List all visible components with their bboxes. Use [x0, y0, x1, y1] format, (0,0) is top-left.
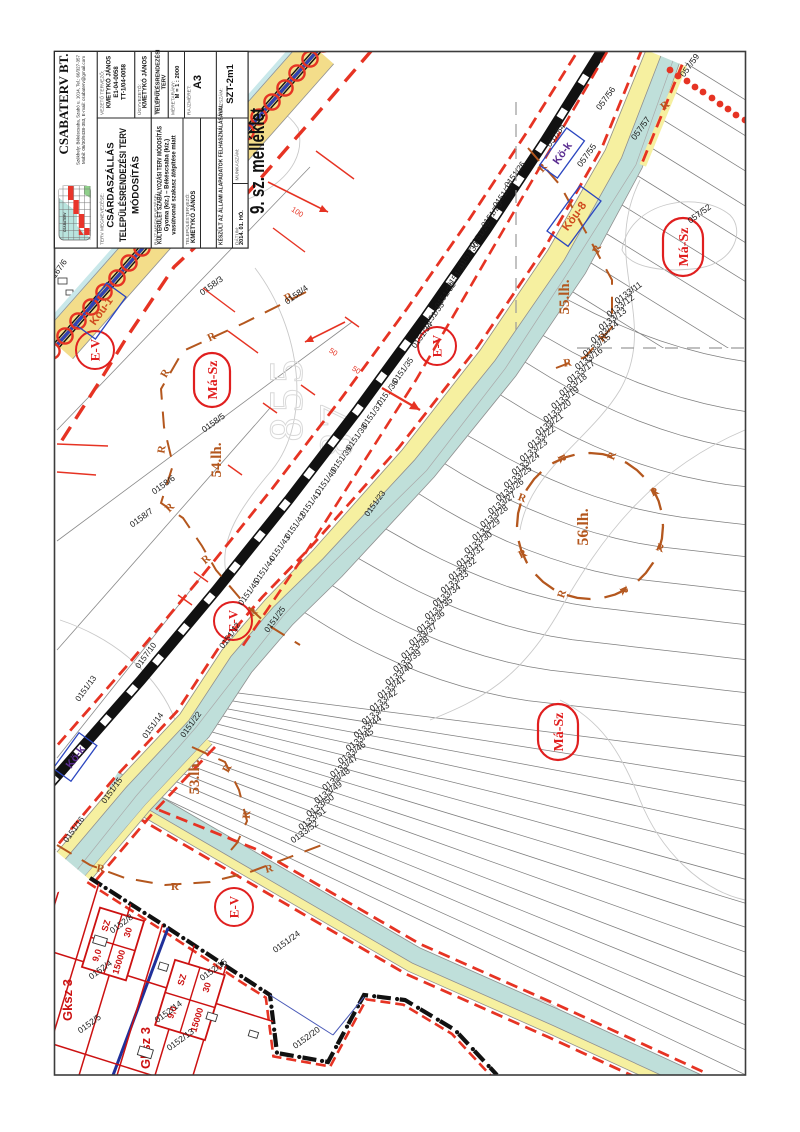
svg-text:M = 1 : 2000: M = 1 : 2000 — [175, 66, 181, 99]
svg-text:SZT-2m1: SZT-2m1 — [225, 63, 236, 103]
svg-text:Má-Sz: Má-Sz — [206, 361, 221, 400]
svg-text:E-V: E-V — [430, 334, 445, 357]
svg-text:9. sz. melléklet: 9. sz. melléklet — [247, 108, 269, 214]
svg-text:TELEPÜLÉSTERVEZŐ:: TELEPÜLÉSTERVEZŐ: — [184, 193, 191, 245]
svg-text:855: 855 — [260, 355, 313, 442]
svg-text:54.lh.: 54.lh. — [209, 442, 225, 477]
svg-text:A3: A3 — [192, 75, 204, 89]
svg-text:Má-Sz: Má-Sz — [677, 228, 692, 267]
svg-text:E-V: E-V — [227, 895, 242, 918]
svg-text:Székhely: Békéscsaba, Szabó: Székhely: Békéscsaba, Szabó u. 1014, Tel… — [76, 54, 81, 165]
svg-text:CSABATERV: CSABATERV — [63, 212, 67, 232]
svg-text:Má-Sz: Má-Sz — [552, 713, 567, 752]
svg-text:MUNKASZÁM:: MUNKASZÁM: — [234, 149, 241, 181]
svg-text:CSÁRDASZÁLLÁS: CSÁRDASZÁLLÁS — [105, 142, 117, 228]
svg-text:53.lh.: 53.lh. — [187, 759, 203, 794]
svg-text:KÉSZÜLT AZ ÁLLAMI ALAPADATOK F: KÉSZÜLT AZ ÁLLAMI ALAPADATOK FELHASZNÁLÁ… — [217, 104, 225, 245]
svg-text:Mobil: 06/30/9438-353, E-ma: Mobil: 06/30/9438-353, E-mail: csabaterv… — [81, 55, 86, 164]
svg-text:KMETYKÓ JÁNOS: KMETYKÓ JÁNOS — [141, 56, 149, 108]
svg-text:KMETYKÓ JÁNOS: KMETYKÓ JÁNOS — [189, 191, 197, 243]
svg-text:2014. 01. HÓ.: 2014. 01. HÓ. — [237, 210, 245, 245]
svg-text:TELEPÜLÉSRENDEZÉSI: TELEPÜLÉSRENDEZÉSI — [153, 49, 161, 114]
svg-text:VEZETŐ TERVEZŐ:: VEZETŐ TERVEZŐ: — [98, 71, 105, 115]
svg-text:TT-1/04-0058: TT-1/04-0058 — [122, 63, 128, 100]
svg-text:56.lh.: 56.lh. — [575, 508, 592, 545]
svg-text:TELEPÜLÉSRENDEZÉSI TERV: TELEPÜLÉSRENDEZÉSI TERV — [117, 128, 129, 242]
svg-text:TERV: TERV — [162, 74, 168, 89]
svg-text:Gksz 3: Gksz 3 — [60, 979, 75, 1021]
svg-text:E1-04-0058: E1-04-0058 — [114, 66, 120, 98]
svg-text:MÓDOSÍTÁS: MÓDOSÍTÁS — [130, 155, 142, 214]
svg-text:R: R — [171, 881, 180, 893]
svg-text:vasútvonal szakasz átépítése m: vasútvonal szakasz átépítése miatt — [172, 135, 178, 234]
svg-text:E-V: E-V — [88, 338, 103, 361]
svg-text:KÜLTERÜLET SZABÁLYOZÁSI TERV M: KÜLTERÜLET SZABÁLYOZÁSI TERV MÓDOSÍTÁS — [156, 126, 164, 244]
svg-text:KMETYKÓ JÁNOS: KMETYKÓ JÁNOS — [104, 56, 112, 108]
svg-text:55.lh.: 55.lh. — [557, 279, 573, 314]
svg-text:TERV MEGNEVEZÉSE:: TERV MEGNEVEZÉSE: — [98, 193, 105, 245]
svg-text:Gyoma (kíz.) – Békéscsaba (kíz: Gyoma (kíz.) – Békéscsaba (kíz.) — [165, 139, 171, 231]
svg-text:CSABATERV BT.: CSABATERV BT. — [56, 54, 71, 155]
